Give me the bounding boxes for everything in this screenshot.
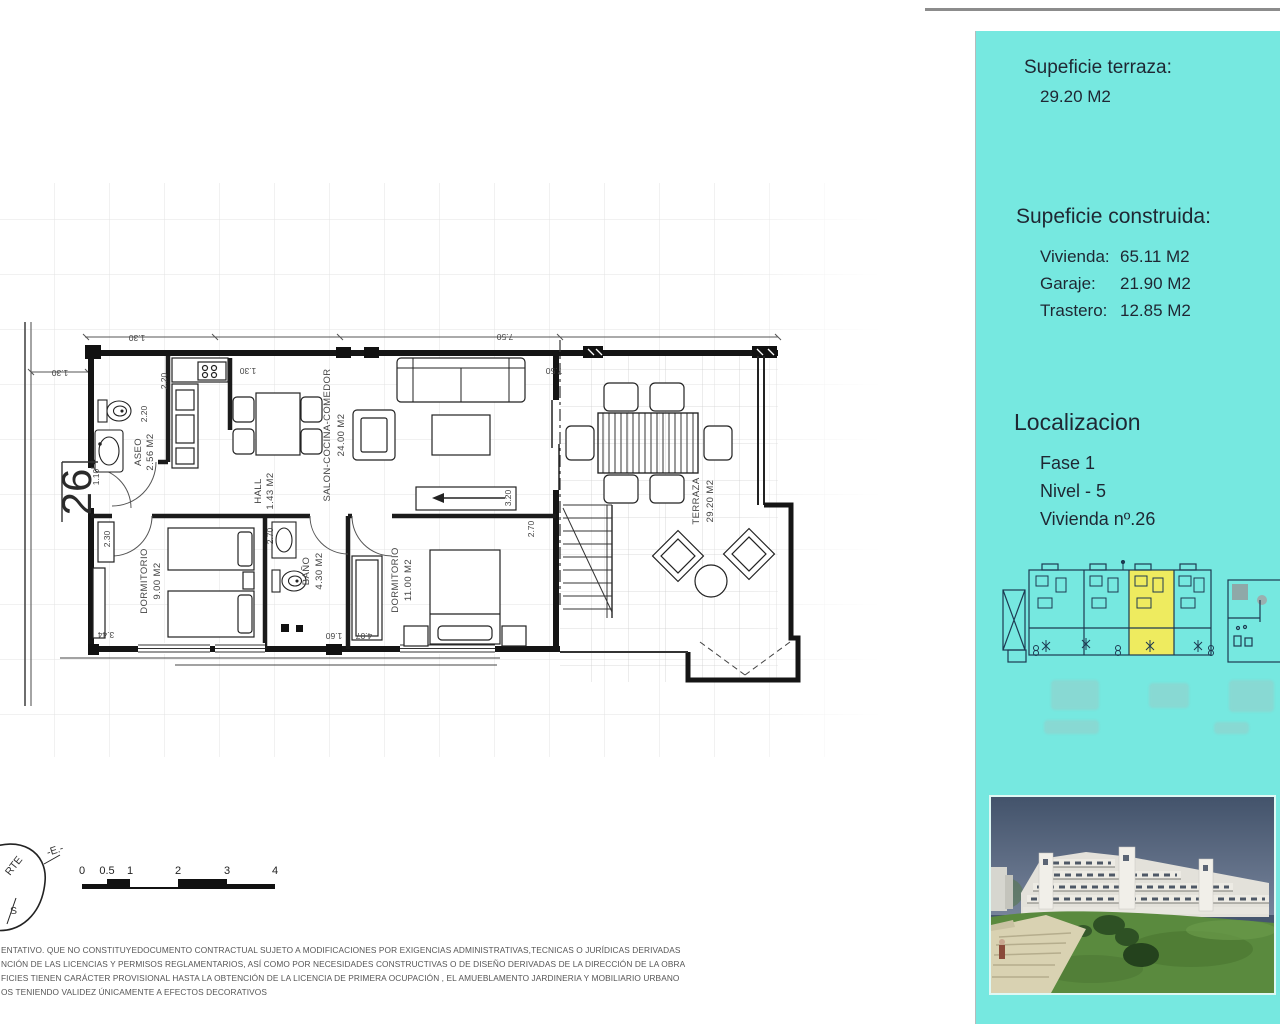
room-area-hall: 1.43 M2: [265, 472, 276, 509]
room-area-terraza: 29.20 M2: [705, 480, 716, 523]
built-area-list: Vivienda:65.11 M2 Garaje:21.90 M2 Traste…: [1040, 243, 1191, 324]
built-area-row: Vivienda:65.11 M2: [1040, 243, 1191, 270]
plant-icon: [1034, 638, 1214, 656]
location-item: Fase 1: [1040, 449, 1155, 477]
dim-label: 2.30: [102, 530, 112, 547]
scale-bar: 0 0.5 1 2 3 4: [79, 865, 278, 889]
tv-unit: [416, 487, 516, 510]
compass-south-label: S: [10, 905, 17, 917]
compass-north-label: RTE: [3, 854, 25, 878]
ghost-artifact: [1229, 680, 1274, 712]
room-label-dorm2: DORMITORIO: [390, 547, 401, 613]
built-area-label: Garaje:: [1040, 270, 1120, 297]
room-area-salon: 24.00 M2: [336, 414, 347, 457]
room-label-aseo: ASEO: [133, 438, 144, 466]
highlighted-unit: [1129, 570, 1174, 655]
dim-label: 1.30: [128, 333, 145, 343]
dim-label: 7.50: [496, 332, 513, 342]
built-area-label: Vivienda:: [1040, 243, 1120, 270]
north-arrow-icon: RTE -E.- S: [0, 842, 65, 930]
top-divider-line: [925, 8, 1280, 11]
terrace-area-value: 29.20 M2: [1040, 87, 1111, 107]
floor-plan: 26 ASEO 2.56 M2 HALL 1.43 M2 SALON-COCIN…: [0, 0, 975, 1024]
ghost-artifact: [1149, 683, 1189, 708]
dim-label: 2.20: [139, 405, 149, 422]
dim-label: 2.20: [159, 372, 169, 389]
built-area-title: Supeficie construida:: [1016, 205, 1211, 229]
room-label-salon: SALON-COCINA-COMEDOR: [322, 368, 333, 501]
room-area-dorm2: 11.00 M2: [403, 559, 414, 601]
disclaimer-line: ENTATIVO. QUE NO CONSTITUYEDOCUMENTO CON…: [1, 945, 681, 955]
room-area-dorm1: 9.00 M2: [152, 562, 163, 599]
room-label-terraza: TERRAZA: [691, 477, 702, 524]
dim-label: 4.07: [355, 631, 372, 641]
ghost-artifact: [1044, 720, 1099, 734]
scale-tick: 4: [272, 865, 278, 877]
location-title: Localizacion: [1014, 409, 1141, 436]
built-area-value: 21.90 M2: [1120, 274, 1191, 293]
dim-label: 3.20: [503, 489, 513, 506]
built-area-label: Trastero:: [1040, 297, 1120, 324]
disclaimer-line: NCIÓN DE LAS LICENCIAS Y PERMISOS REGLAM…: [1, 959, 686, 969]
ghost-artifact: [1214, 722, 1249, 734]
dim-label: 1.10: [91, 468, 101, 485]
disclaimer-line: FICIES TIENEN CARÁCTER PROVISIONAL HASTA…: [1, 973, 680, 983]
brochure-page: 26 ASEO 2.56 M2 HALL 1.43 M2 SALON-COCIN…: [0, 0, 1280, 1024]
dim-label: 3.44: [97, 630, 114, 640]
scale-tick: 3: [224, 865, 230, 877]
tile-grid: [0, 183, 880, 757]
scale-tick: 0: [79, 865, 85, 877]
dim-label: 1.30: [51, 368, 68, 378]
terrace-area-title: Supeficie terraza:: [1024, 57, 1172, 79]
location-item: Nivel - 5: [1040, 477, 1155, 505]
scale-tick: 0.5: [99, 865, 114, 877]
dim-label: 1.60: [325, 631, 342, 641]
dim-label: 2.70: [265, 527, 275, 544]
site-plan-thumbnail: [998, 560, 1280, 672]
compass-east-label: -E.-: [45, 842, 65, 859]
dim-label: 2.70: [526, 520, 536, 537]
dim-label: 7.50: [545, 366, 562, 376]
room-area-aseo: 2.56 M2: [145, 433, 156, 470]
scale-tick: 2: [175, 865, 181, 877]
built-area-row: Trastero:12.85 M2: [1040, 297, 1191, 324]
room-area-bano: 4.30 M2: [314, 552, 325, 589]
location-item: Vivienda nº.26: [1040, 505, 1155, 533]
room-label-hall: HALL: [253, 478, 264, 503]
built-area-value: 12.85 M2: [1120, 301, 1191, 320]
built-area-value: 65.11 M2: [1120, 247, 1190, 266]
bedroom2-furniture: [352, 550, 526, 646]
disclaimer-text: ENTATIVO. QUE NO CONSTITUYEDOCUMENTO CON…: [1, 945, 686, 997]
disclaimer-line: OS TENIENDO VALIDEZ ÚNICAMENTE A EFECTOS…: [1, 987, 267, 997]
info-sidebar: Supeficie terraza: 29.20 M2 Supeficie co…: [975, 31, 1280, 1024]
building-render-photo: [989, 795, 1276, 995]
scale-tick: 1: [127, 865, 133, 877]
ghost-artifact: [1051, 680, 1099, 710]
room-label-bano: BAÑO: [301, 557, 312, 586]
dim-label: 1.30: [239, 366, 256, 376]
built-area-row: Garaje:21.90 M2: [1040, 270, 1191, 297]
location-list: Fase 1 Nivel - 5 Vivienda nº.26: [1040, 449, 1155, 533]
room-label-dorm1: DORMITORIO: [139, 548, 150, 614]
